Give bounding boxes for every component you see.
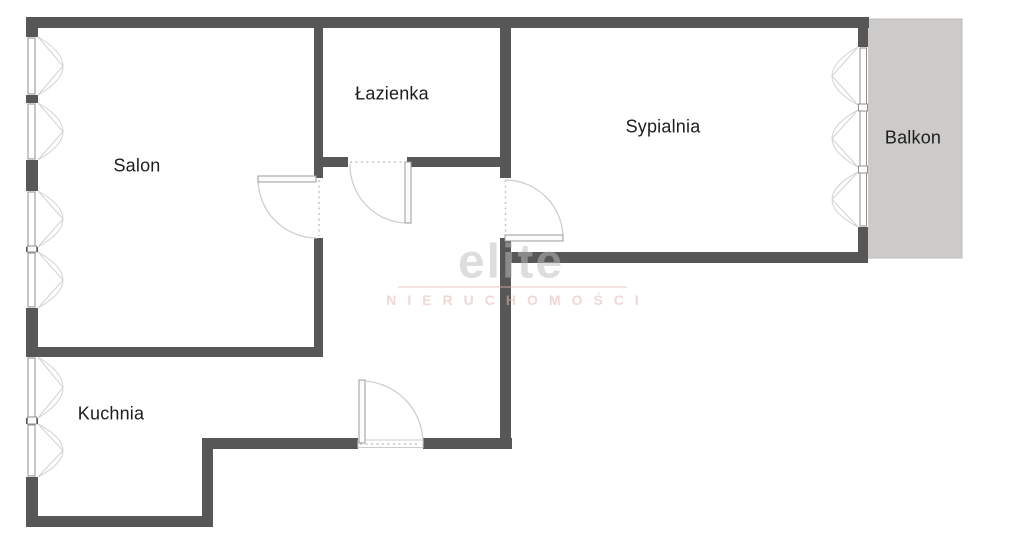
door-sypialnia bbox=[505, 180, 563, 241]
window-frame bbox=[28, 425, 35, 476]
door-swing-arc bbox=[362, 381, 423, 443]
window-connector bbox=[28, 417, 37, 424]
window bbox=[26, 103, 63, 160]
window-connector bbox=[28, 246, 37, 252]
window-connector bbox=[859, 104, 868, 111]
window-swing-arc bbox=[38, 191, 63, 247]
window bbox=[26, 37, 63, 95]
window-swing-arc bbox=[38, 357, 63, 418]
window-swing-arc bbox=[832, 172, 858, 227]
door-salon bbox=[258, 176, 319, 238]
door-threshold bbox=[358, 440, 423, 448]
window-frame bbox=[28, 253, 35, 307]
window bbox=[26, 424, 63, 477]
window-connector bbox=[859, 166, 868, 173]
doors bbox=[258, 162, 563, 448]
window bbox=[26, 191, 63, 247]
wall-segment bbox=[314, 17, 323, 178]
room-label-kuchnia: Kuchnia bbox=[78, 404, 144, 425]
window-frame bbox=[28, 358, 35, 417]
window-frame bbox=[28, 192, 35, 246]
wall-segment bbox=[500, 252, 868, 263]
room-label-balkon: Balkon bbox=[885, 128, 941, 149]
wall-segment bbox=[323, 157, 348, 167]
window-swing-arc bbox=[38, 37, 63, 95]
window-frame bbox=[28, 38, 35, 94]
window-swing-arc bbox=[832, 110, 858, 167]
floor-plan: elite NIERUCHOMOŚCI Salon Łazienka Sypia… bbox=[0, 0, 1024, 555]
door-swing-arc bbox=[258, 179, 317, 238]
wall-segment bbox=[407, 157, 500, 167]
wall-segment bbox=[202, 438, 213, 527]
window bbox=[26, 357, 63, 418]
window bbox=[832, 47, 868, 105]
room-label-salon: Salon bbox=[113, 156, 160, 177]
wall-segment bbox=[858, 227, 868, 263]
window-swing-arc bbox=[38, 252, 63, 308]
room-label-lazienka: Łazienka bbox=[355, 84, 429, 105]
window bbox=[26, 252, 63, 308]
door-leaf bbox=[359, 380, 365, 443]
door-leaf bbox=[258, 176, 316, 182]
wall-segment bbox=[26, 347, 323, 357]
door-swing-arc bbox=[505, 180, 563, 238]
door-swing-arc bbox=[350, 164, 408, 223]
window-frame bbox=[28, 104, 35, 159]
door-lazienka bbox=[350, 162, 411, 223]
window-swing-arc bbox=[38, 103, 63, 160]
wall-segment bbox=[500, 238, 511, 449]
wall-segment bbox=[500, 17, 511, 178]
room-label-sypialnia: Sypialnia bbox=[626, 117, 701, 138]
window-swing-arc bbox=[832, 47, 858, 105]
wall-segment bbox=[858, 17, 868, 47]
floor-plan-drawing bbox=[0, 0, 1024, 555]
window-frame bbox=[860, 48, 867, 104]
window-frame bbox=[860, 111, 867, 166]
wall-segment bbox=[26, 17, 869, 28]
wall-segment bbox=[26, 516, 213, 527]
wall-segment bbox=[423, 438, 512, 449]
door-leaf bbox=[505, 235, 563, 241]
door-leaf bbox=[405, 162, 411, 223]
door-entrance bbox=[358, 380, 423, 448]
window-frame bbox=[860, 173, 867, 226]
wall-segment bbox=[314, 238, 323, 357]
wall-segment bbox=[202, 438, 358, 449]
walls bbox=[26, 17, 869, 527]
window bbox=[832, 110, 868, 167]
window-swing-arc bbox=[38, 424, 63, 477]
window bbox=[832, 172, 868, 227]
